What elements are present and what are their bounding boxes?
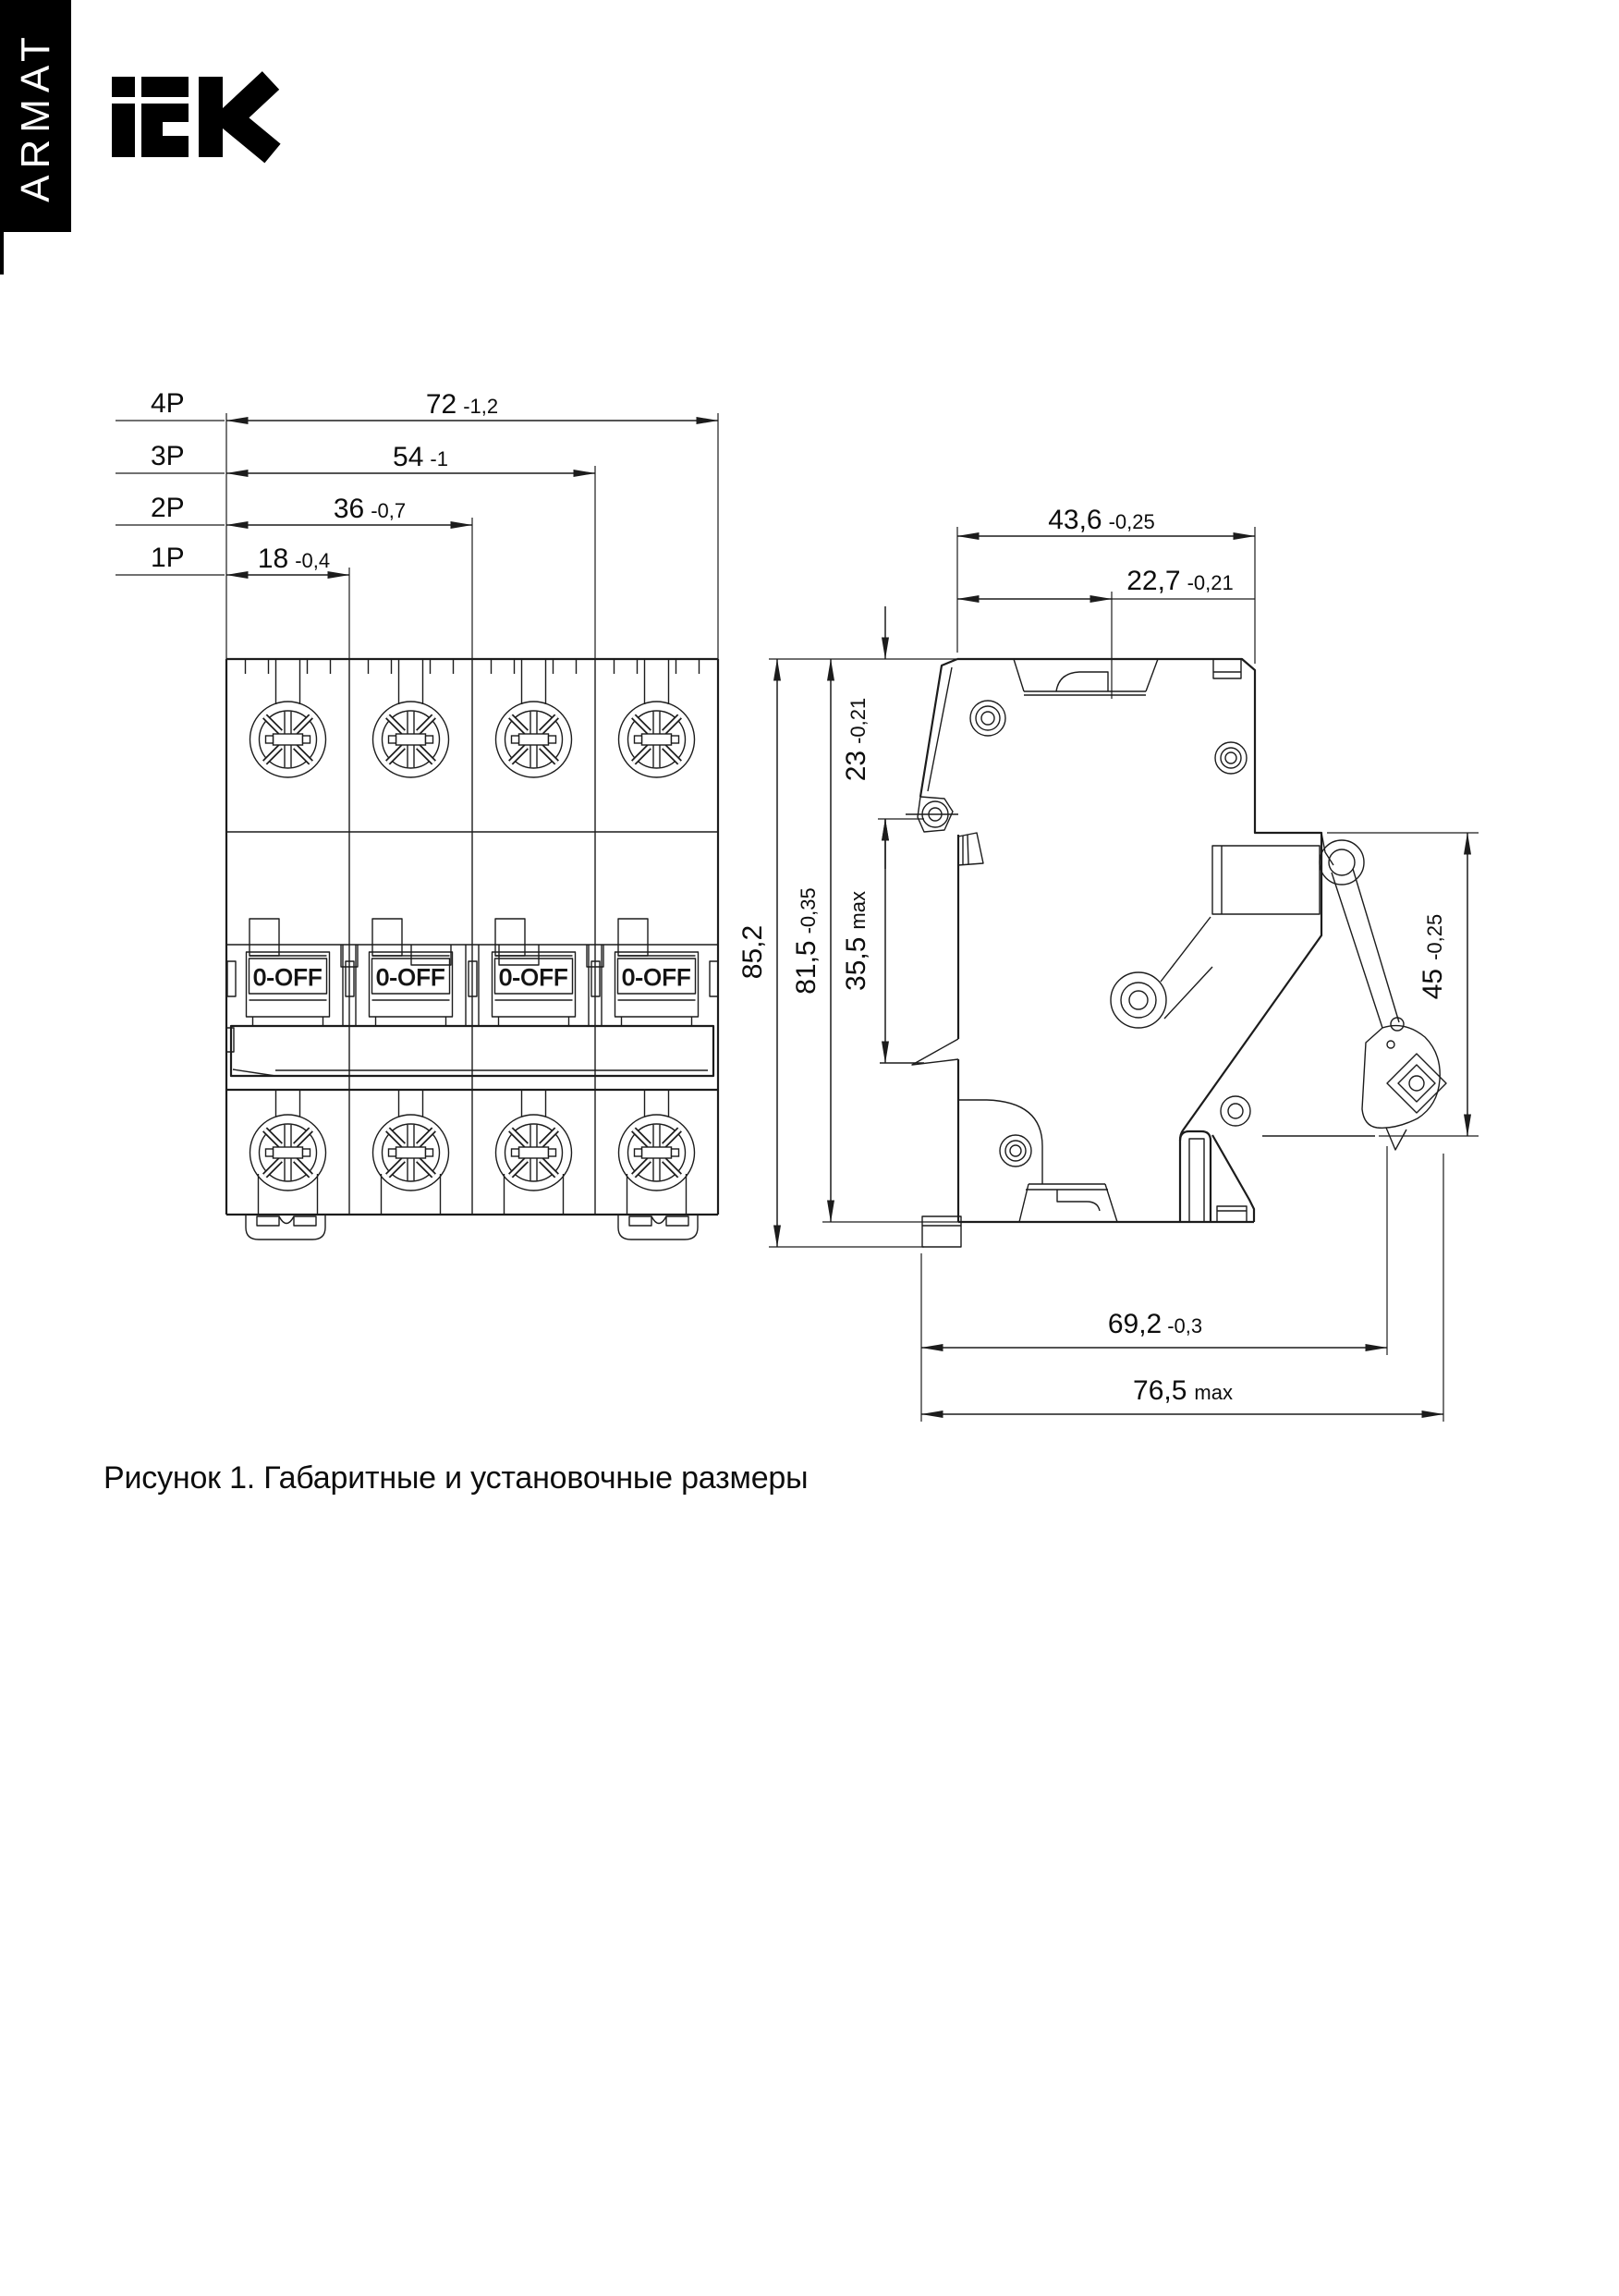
figure-caption: Рисунок 1. Габаритные и установочные раз… bbox=[103, 1460, 808, 1496]
handle-state-label-3: 0-OFF bbox=[499, 965, 568, 991]
dim-handle-offset: 22,7-0,21 bbox=[957, 566, 1255, 699]
side-body-details bbox=[880, 659, 1446, 1247]
dim-2p-value: 36-0,7 bbox=[334, 494, 406, 524]
dim-depth-max: 76,5max bbox=[921, 1154, 1443, 1422]
datasheet-page: ARMAT bbox=[0, 0, 1619, 2296]
side-body-outline bbox=[920, 659, 1321, 1222]
front-din-clips bbox=[246, 1215, 698, 1240]
dim-3p-label: 3P bbox=[151, 441, 185, 471]
dim-2p-label: 2P bbox=[151, 493, 185, 523]
front-extension-lines bbox=[226, 413, 718, 659]
front-view: 4P 72-1,2 3P 54-1 2P 36-0,7 bbox=[116, 388, 718, 1240]
dim-2p: 2P 36-0,7 bbox=[116, 493, 472, 525]
dim-4p-label: 4P bbox=[151, 388, 185, 419]
front-tie-bar bbox=[226, 1026, 713, 1076]
dim-latch-travel: 35,5max bbox=[841, 819, 924, 1063]
side-dimensions: 43,6-0,25 22,7-0,21 23-0,21 bbox=[737, 505, 1479, 1422]
dim-depth-max-value: 76,5max bbox=[1133, 1375, 1233, 1406]
dim-front-width: 45-0,25 bbox=[1327, 833, 1479, 1136]
dim-latch-travel-value: 35,5max bbox=[841, 891, 871, 991]
dim-depth-rail-value: 69,2-0,3 bbox=[1108, 1309, 1202, 1339]
side-view: 43,6-0,25 22,7-0,21 23-0,21 bbox=[737, 505, 1479, 1422]
terminal-screw-top-1 bbox=[250, 702, 326, 777]
dim-height-total-value: 85,2 bbox=[737, 925, 768, 979]
terminal-screw-bottom-2 bbox=[373, 1115, 449, 1191]
front-pole-dimensions: 4P 72-1,2 3P 54-1 2P 36-0,7 bbox=[116, 388, 718, 575]
dim-depth-top-value: 43,6-0,25 bbox=[1048, 505, 1155, 535]
logo-i-body bbox=[112, 104, 135, 157]
logo-k-arms bbox=[230, 80, 273, 153]
dim-front-width-value: 45-0,25 bbox=[1418, 914, 1448, 1000]
logo-e-top bbox=[141, 77, 189, 97]
dim-3p: 3P 54-1 bbox=[116, 441, 595, 473]
dim-1p-value: 18-0,4 bbox=[258, 543, 330, 574]
terminal-screw-top-3 bbox=[496, 702, 572, 777]
dim-1p-label: 1P bbox=[151, 543, 185, 573]
dim-height-body-value: 81,5-0,35 bbox=[791, 887, 822, 995]
iek-logo bbox=[112, 77, 273, 157]
dim-1p: 1P 18-0,4 bbox=[116, 543, 349, 575]
handle-state-label-2: 0-OFF bbox=[376, 965, 445, 991]
dim-4p: 4P 72-1,2 bbox=[116, 388, 718, 421]
logo-e-body bbox=[141, 104, 189, 157]
handle-state-label-1: 0-OFF bbox=[253, 965, 323, 991]
terminal-screw-bottom-1 bbox=[250, 1115, 326, 1191]
terminal-screw-top-2 bbox=[373, 702, 449, 777]
terminal-screw-bottom-4 bbox=[619, 1115, 695, 1191]
dim-handle-offset-value: 22,7-0,21 bbox=[1126, 566, 1234, 596]
dim-3p-value: 54-1 bbox=[393, 442, 448, 472]
terminal-screw-top-4 bbox=[619, 702, 695, 777]
handle-state-label-4: 0-OFF bbox=[622, 965, 691, 991]
dim-height-body: 81,5-0,35 bbox=[791, 659, 958, 1222]
dim-latch-top: 23-0,21 bbox=[841, 606, 885, 869]
drawing-canvas: 4P 72-1,2 3P 54-1 2P 36-0,7 bbox=[0, 0, 1619, 2296]
logo-i-dot bbox=[112, 77, 135, 97]
dim-4p-value: 72-1,2 bbox=[426, 389, 498, 420]
dim-latch-top-value: 23-0,21 bbox=[841, 698, 871, 782]
terminal-screw-bottom-3 bbox=[496, 1115, 572, 1191]
